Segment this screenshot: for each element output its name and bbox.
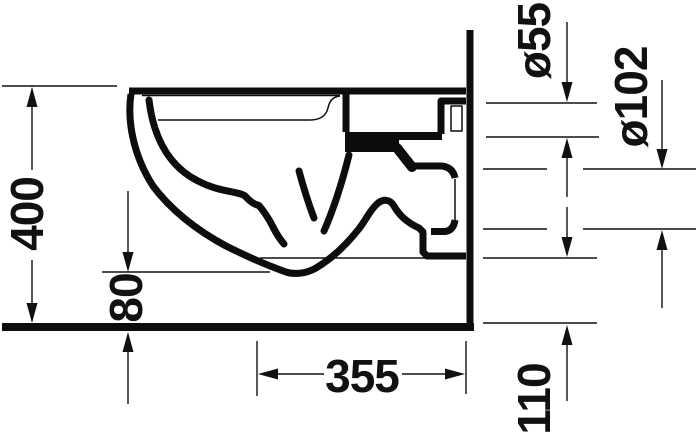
dimension-label-355: 355 [325,350,399,402]
flush-channel-shape [345,132,399,152]
dimension-label-80: 80 [100,273,152,322]
dimension-label-400: 400 [1,177,53,251]
dimension-label-110: 110 [508,363,560,434]
technical-drawing-page: 400 80 355 ø55 [0,0,697,438]
dimension-label-o55: ø55 [508,2,560,79]
dimension-label-o102: ø102 [605,47,657,148]
toilet-dimension-drawing: 400 80 355 ø55 [0,0,697,438]
